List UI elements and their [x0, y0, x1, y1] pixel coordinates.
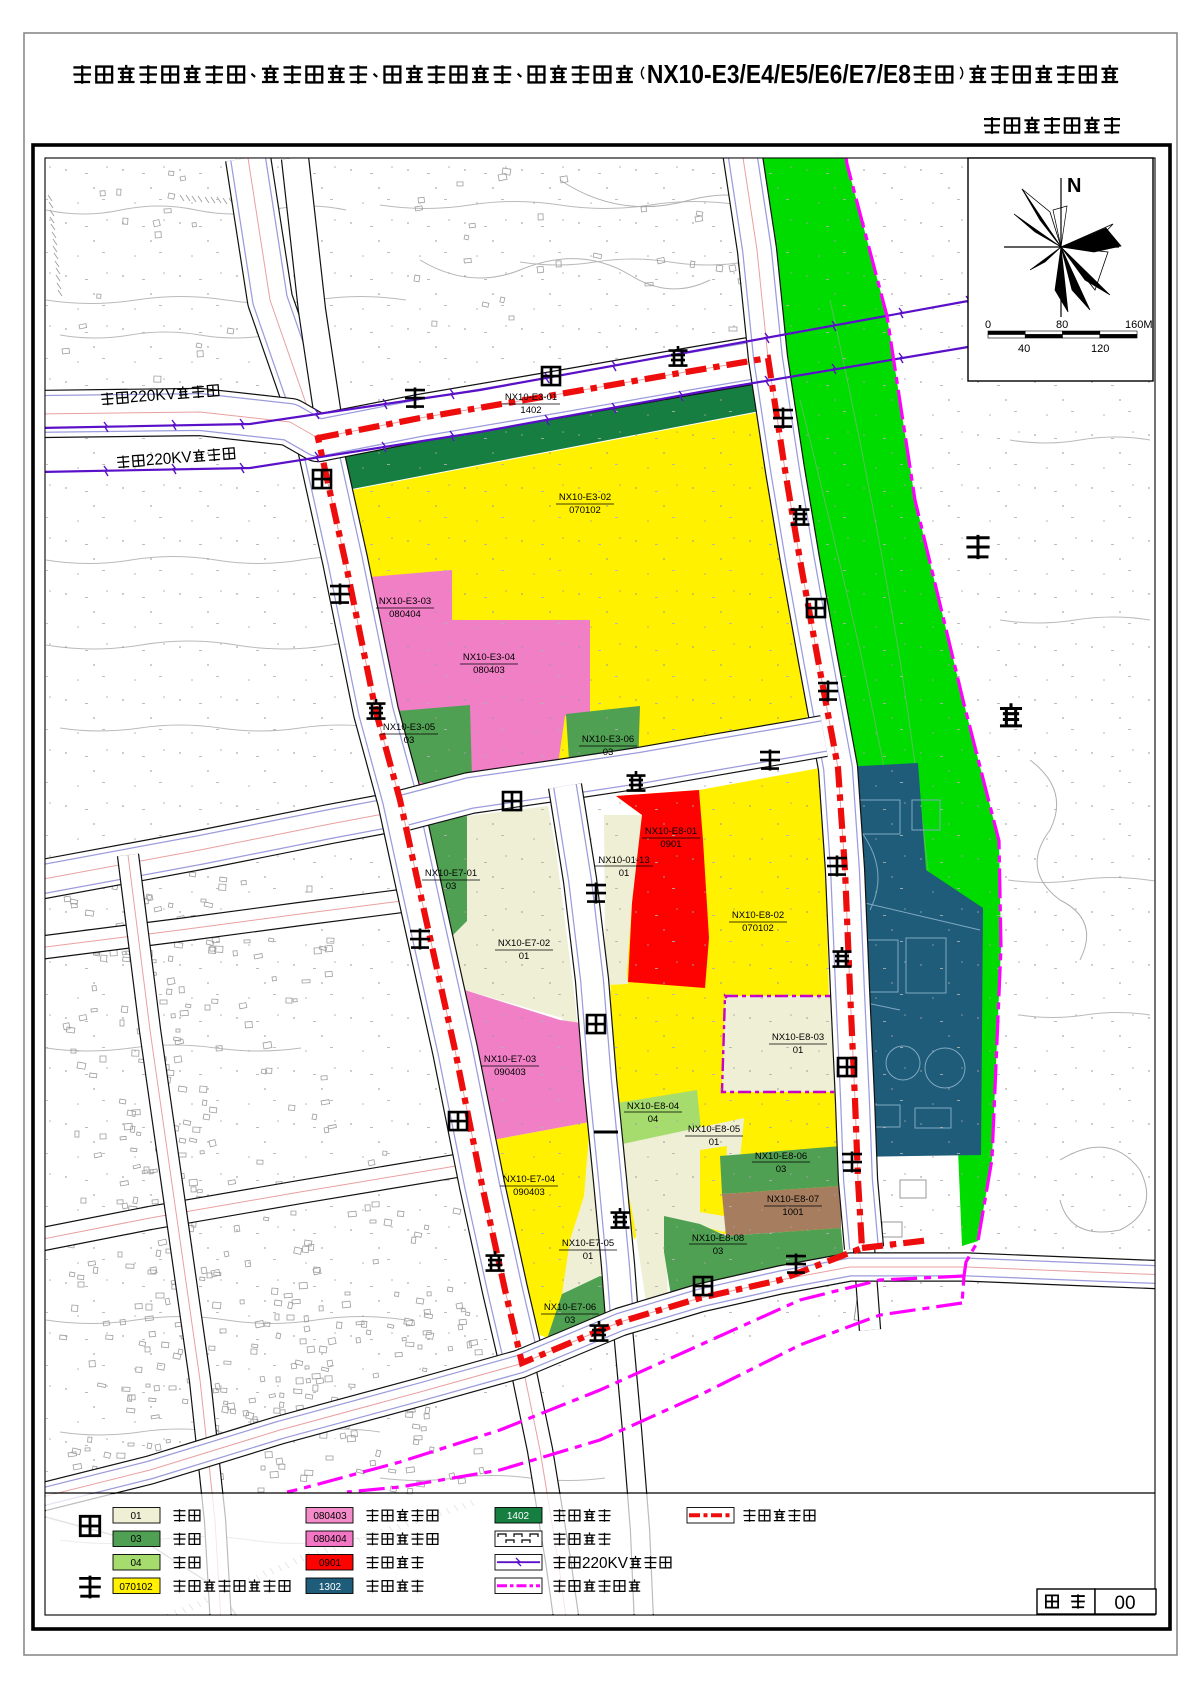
svg-text:NX10-E8-05: NX10-E8-05: [688, 1124, 740, 1135]
svg-text:NX10-E8-02: NX10-E8-02: [732, 910, 784, 921]
svg-text:1402: 1402: [520, 405, 541, 416]
svg-text:080404: 080404: [313, 1534, 347, 1545]
svg-text:220KV: 220KV: [129, 386, 177, 407]
svg-text:080403: 080403: [313, 1511, 347, 1522]
svg-text:120: 120: [1091, 343, 1109, 355]
svg-text:160M: 160M: [1125, 319, 1153, 331]
svg-text:01: 01: [619, 868, 630, 879]
svg-text:01: 01: [793, 1045, 804, 1056]
svg-text:080403: 080403: [473, 665, 505, 676]
svg-text:080404: 080404: [389, 609, 421, 620]
svg-text:NX10-E7-02: NX10-E7-02: [498, 938, 550, 949]
svg-text:NX10-E3/E4/E5/E6/E7/E8: NX10-E3/E4/E5/E6/E7/E8: [647, 59, 911, 89]
svg-text:NX10-E3-06: NX10-E3-06: [582, 734, 634, 745]
svg-text:NX10-E7-04: NX10-E7-04: [503, 1174, 555, 1185]
svg-text:03: 03: [776, 1164, 787, 1175]
svg-text:03: 03: [130, 1534, 142, 1545]
svg-text:03: 03: [565, 1315, 576, 1326]
svg-text:01: 01: [519, 951, 530, 962]
svg-text:03: 03: [603, 747, 614, 758]
svg-text:NX10-E8-03: NX10-E8-03: [772, 1032, 824, 1043]
svg-text:00: 00: [1114, 1593, 1135, 1614]
svg-text:04: 04: [648, 1114, 659, 1125]
svg-text:070102: 070102: [569, 505, 601, 516]
svg-text:80: 80: [1056, 319, 1068, 331]
svg-text:1302: 1302: [319, 1582, 342, 1593]
svg-text:070102: 070102: [119, 1582, 153, 1593]
svg-text:0901: 0901: [319, 1558, 342, 1569]
svg-text:NX10-E8-08: NX10-E8-08: [692, 1233, 744, 1244]
svg-text:070102: 070102: [742, 923, 774, 934]
svg-text:090403: 090403: [513, 1187, 545, 1198]
svg-text:03: 03: [446, 881, 457, 892]
svg-text:NX10-E7-05: NX10-E7-05: [562, 1238, 614, 1249]
svg-text:N: N: [1067, 175, 1081, 197]
svg-text:220KV: 220KV: [145, 449, 193, 470]
svg-text:01: 01: [709, 1137, 720, 1148]
svg-text:1402: 1402: [507, 1511, 530, 1522]
svg-text:NX10-01-13: NX10-01-13: [598, 855, 649, 866]
svg-text:01: 01: [583, 1251, 594, 1262]
svg-text:NX10-E7-06: NX10-E7-06: [544, 1302, 596, 1313]
svg-text:0: 0: [985, 319, 991, 331]
svg-text:NX10-E8-01: NX10-E8-01: [645, 826, 697, 837]
svg-text:NX10-E7-01: NX10-E7-01: [425, 868, 477, 879]
svg-text:090403: 090403: [494, 1067, 526, 1078]
svg-text:01: 01: [130, 1511, 142, 1522]
svg-text:NX10-E3-02: NX10-E3-02: [559, 492, 611, 503]
svg-text:NX10-E3-03: NX10-E3-03: [379, 596, 431, 607]
svg-text:NX10-E3-01: NX10-E3-01: [505, 392, 557, 403]
svg-text:220KV: 220KV: [582, 1555, 628, 1572]
svg-text:1001: 1001: [782, 1207, 803, 1218]
svg-text:NX10-E3-04: NX10-E3-04: [463, 652, 515, 663]
svg-text:40: 40: [1018, 343, 1030, 355]
svg-text:NX10-E8-06: NX10-E8-06: [755, 1151, 807, 1162]
svg-text:04: 04: [130, 1558, 142, 1569]
svg-text:NX10-E8-04: NX10-E8-04: [627, 1101, 679, 1112]
svg-text:NX10-E3-05: NX10-E3-05: [383, 722, 435, 733]
svg-text:NX10-E7-03: NX10-E7-03: [484, 1054, 536, 1065]
svg-text:NX10-E8-07: NX10-E8-07: [767, 1194, 819, 1205]
svg-text:0901: 0901: [660, 839, 681, 850]
svg-text:03: 03: [404, 735, 415, 746]
svg-text:03: 03: [713, 1246, 724, 1257]
